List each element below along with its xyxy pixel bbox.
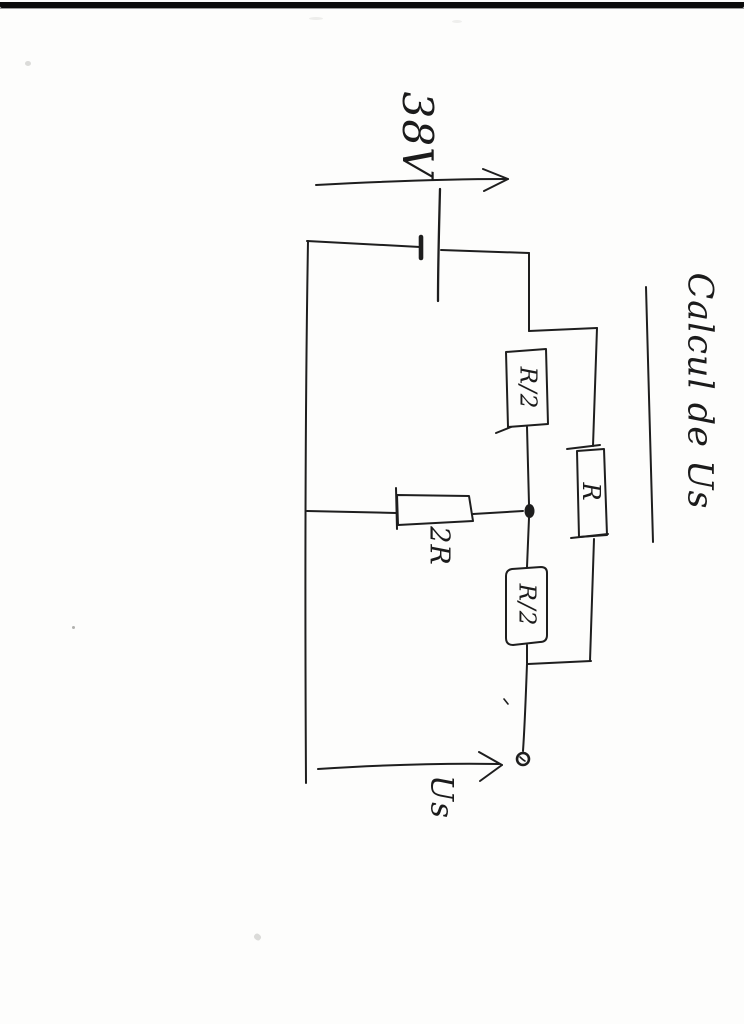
battery-symbol <box>421 189 440 301</box>
resistor-middle-label: R <box>579 482 603 501</box>
wire-output-lead <box>504 664 527 751</box>
output-voltage-arrow <box>318 752 502 781</box>
scan-speck <box>72 626 75 629</box>
resistor-bottom-label: R/2 <box>515 584 538 627</box>
wire-bottom-connector <box>528 661 591 664</box>
junction-node <box>525 504 535 518</box>
wire-node-down <box>527 518 529 567</box>
output-terminal <box>517 753 529 765</box>
resistor-shunt-box <box>307 488 523 529</box>
circuit-schematic-drawing <box>0 0 744 1024</box>
scan-smudge <box>309 17 323 20</box>
scan-speck <box>25 61 31 66</box>
title-underline <box>646 287 653 542</box>
wire-to-node <box>527 427 529 504</box>
scan-smudge <box>452 20 462 23</box>
resistor-shunt-label: 2R <box>426 526 453 566</box>
resistor-top-label: R/2 <box>516 367 539 410</box>
scanned-document-page: 38V Calcul de Us R/2 R R/2 2R Us <box>0 0 744 1024</box>
page-title: Calcul de Us <box>682 272 717 509</box>
wire-top-left <box>307 241 420 247</box>
source-voltage-label: 38V <box>396 92 438 179</box>
wire-top-right <box>441 250 529 253</box>
output-voltage-label: Us <box>426 775 457 819</box>
